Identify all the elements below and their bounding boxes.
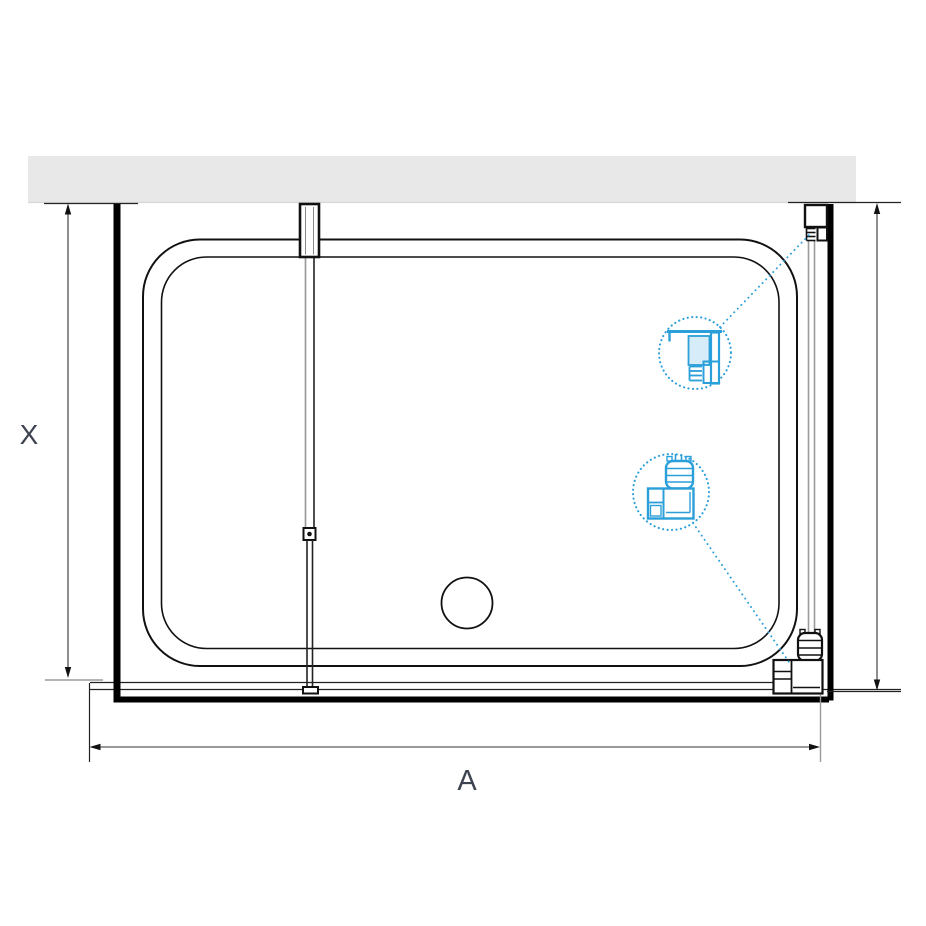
corner-connector (774, 630, 823, 694)
corner-clamp-barrel (798, 633, 822, 661)
tray-outer-edge (143, 240, 797, 667)
diagram-canvas: X A (0, 0, 926, 926)
corner-connector-magnified (648, 454, 694, 519)
corner-connector-detail-callout (633, 454, 789, 662)
wall (28, 156, 856, 202)
drain (442, 578, 493, 629)
right-glass-panel (809, 241, 815, 634)
dimension-width (90, 683, 821, 762)
shower-tray (143, 240, 797, 667)
shower-enclosure-plan-drawing: X A (0, 0, 926, 926)
wall-mount-bracket (300, 204, 319, 257)
callout-leader-2 (693, 523, 789, 662)
center-glass-panel (300, 204, 319, 694)
dimension-right (788, 203, 901, 692)
corner-block (774, 660, 823, 694)
dimension-depth (44, 204, 138, 681)
width-dimension-label: A (457, 765, 477, 797)
wall-profile-magnified (667, 332, 722, 384)
depth-dimension-label: X (20, 419, 39, 450)
wall-profile-spring (807, 228, 816, 241)
tray-inner-edge (162, 257, 780, 649)
panel-connector-pin (307, 532, 312, 537)
panel-foot (303, 687, 318, 694)
